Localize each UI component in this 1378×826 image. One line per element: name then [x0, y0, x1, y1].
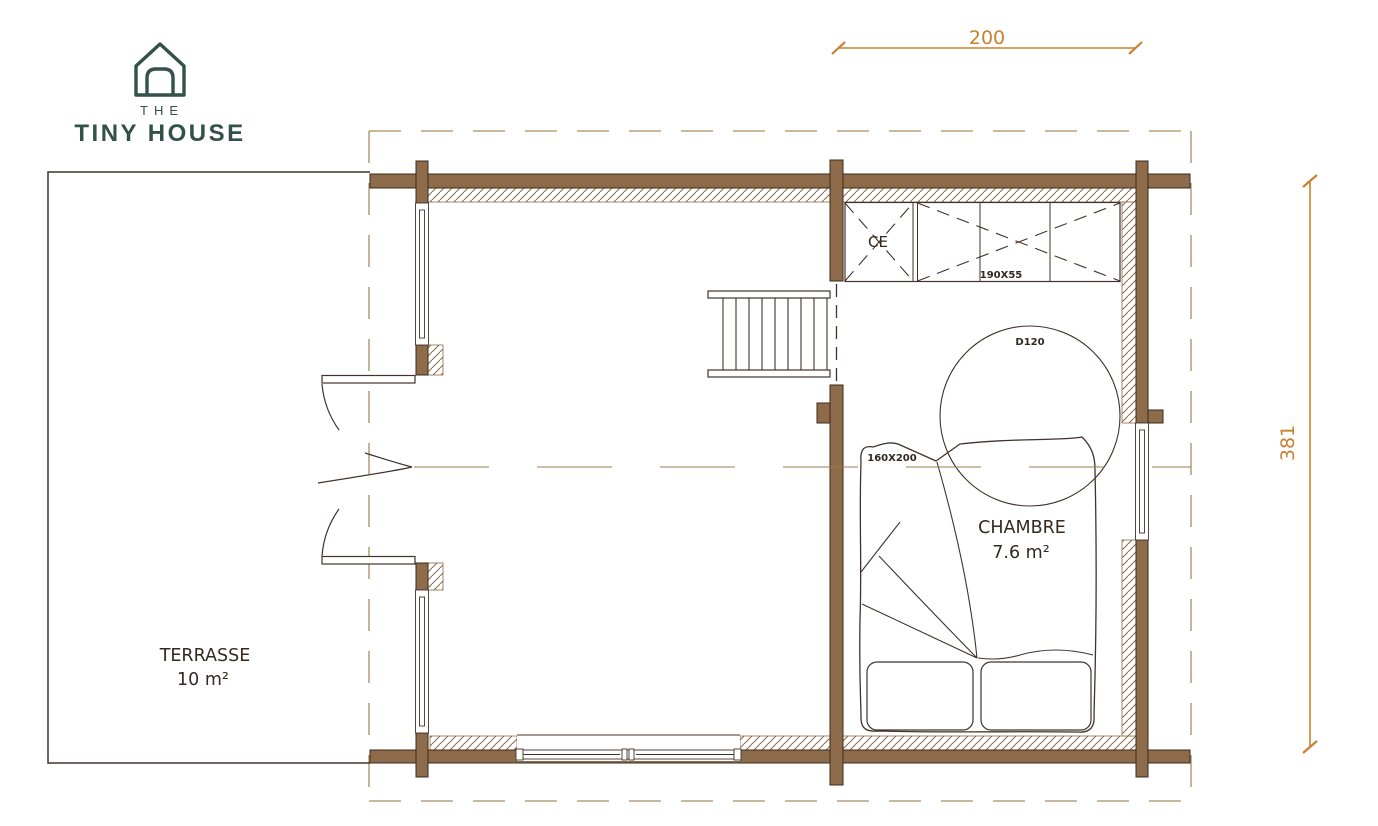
window-left-lower	[416, 590, 429, 733]
stair-rail-top	[708, 291, 830, 298]
hatch-right-lower	[1122, 540, 1137, 736]
door-swing-arc	[322, 384, 339, 430]
bed: 160X200	[860, 437, 1096, 732]
pillow-left	[867, 662, 973, 730]
hatch-bottom-left	[430, 736, 517, 750]
wall-left-post-top	[416, 161, 428, 203]
hatch-right-upper	[1122, 202, 1137, 423]
wall-interior-lower	[830, 385, 843, 785]
dimension-top-value: 200	[969, 27, 1005, 49]
chambre-name: CHAMBRE	[978, 518, 1066, 538]
wall-left-block2	[416, 563, 428, 590]
house-door-icon	[147, 69, 173, 95]
stair-rail-bottom	[708, 370, 830, 377]
wall-right-upper	[1136, 161, 1148, 423]
brand-top-label: THE	[140, 103, 184, 118]
wall-interior-log-end	[817, 403, 830, 423]
dimension-top: 200	[832, 27, 1142, 54]
door-leaf-lower	[322, 557, 415, 565]
hatch-left-block2	[428, 563, 443, 590]
floor-plan-drawing: THE TINY HOUSE 200 381 TERRASSE 10 m²	[0, 0, 1378, 826]
dimension-right: 381	[1277, 175, 1317, 753]
hatch-left-block1	[428, 345, 443, 375]
window-left-upper	[416, 203, 429, 345]
hatch-top	[427, 188, 1137, 202]
door-swing-arc	[322, 509, 339, 556]
wall-bottom	[370, 750, 1190, 763]
stair-treads	[723, 298, 827, 370]
wall-top	[370, 174, 1190, 188]
wall-right-log-end	[1148, 410, 1163, 423]
closet-size-label: 190X55	[980, 270, 1023, 281]
floor-plan-page: THE TINY HOUSE 200 381 TERRASSE 10 m²	[0, 0, 1378, 826]
brand-name-label: TINY HOUSE	[74, 120, 245, 147]
dimension-right-value: 381	[1277, 425, 1299, 461]
terrace-doors	[318, 376, 415, 565]
wall-left-block1	[416, 345, 428, 375]
hatch-bottom-right	[740, 736, 1137, 750]
door-leaf-upper	[322, 376, 415, 384]
stairs	[708, 291, 830, 377]
skylight-label: D120	[1015, 337, 1044, 348]
wall-interior-upper	[830, 160, 843, 281]
terrasse-area: 10 m²	[177, 670, 229, 690]
wall-right-lower	[1136, 540, 1148, 777]
brand-logo: THE TINY HOUSE	[74, 44, 245, 147]
terrasse: TERRASSE 10 m²	[48, 172, 370, 763]
terrasse-name: TERRASSE	[159, 646, 251, 666]
wall-left-post-bottom	[416, 733, 428, 777]
bed-size-label: 160X200	[867, 453, 917, 464]
closet: CE 190X55	[845, 203, 1120, 282]
water-heater-label: CE	[868, 233, 888, 251]
pillow-right	[981, 662, 1091, 730]
window-bottom-wide	[516, 735, 741, 761]
window-right	[1136, 423, 1149, 540]
door-meeting-chevron-icon	[318, 453, 412, 483]
chambre-area: 7.6 m²	[992, 543, 1049, 563]
